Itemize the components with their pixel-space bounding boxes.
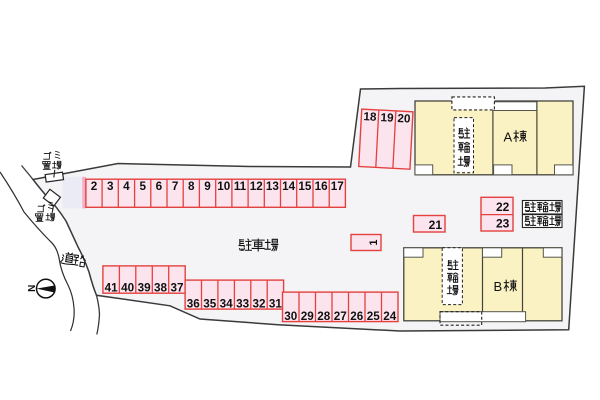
svg-text:20: 20 — [397, 112, 411, 126]
svg-text:36: 36 — [187, 297, 201, 310]
svg-text:29: 29 — [301, 310, 315, 323]
svg-text:25: 25 — [367, 310, 381, 323]
svg-text:40: 40 — [121, 281, 135, 294]
svg-text:8: 8 — [188, 180, 195, 193]
svg-text:23: 23 — [496, 217, 510, 231]
svg-text:27: 27 — [334, 310, 347, 323]
svg-text:B: B — [494, 279, 503, 294]
svg-text:4: 4 — [123, 180, 130, 193]
svg-text:39: 39 — [138, 281, 152, 294]
svg-text:A: A — [504, 130, 513, 145]
svg-text:10: 10 — [217, 180, 231, 193]
svg-text:24: 24 — [383, 310, 397, 323]
svg-text:33: 33 — [236, 297, 250, 310]
svg-text:5: 5 — [139, 180, 146, 193]
svg-text:19: 19 — [380, 111, 394, 125]
svg-text:32: 32 — [252, 297, 266, 310]
svg-text:9: 9 — [204, 180, 211, 193]
svg-text:2: 2 — [91, 180, 98, 193]
svg-text:26: 26 — [350, 310, 364, 323]
svg-text:22: 22 — [496, 200, 510, 214]
svg-text:16: 16 — [315, 180, 329, 193]
svg-text:7: 7 — [172, 180, 179, 193]
svg-text:41: 41 — [105, 281, 119, 294]
svg-text:38: 38 — [154, 281, 168, 294]
svg-text:30: 30 — [284, 310, 298, 323]
svg-text:14: 14 — [282, 180, 296, 193]
svg-text:28: 28 — [317, 310, 331, 323]
svg-text:35: 35 — [203, 297, 217, 310]
svg-text:12: 12 — [250, 180, 264, 193]
svg-text:1: 1 — [368, 239, 380, 245]
svg-text:37: 37 — [170, 281, 183, 294]
svg-text:3: 3 — [107, 180, 114, 193]
svg-text:31: 31 — [269, 297, 283, 310]
svg-text:34: 34 — [220, 297, 234, 310]
svg-text:15: 15 — [298, 180, 312, 193]
svg-text:21: 21 — [429, 218, 443, 232]
svg-text:N: N — [27, 285, 38, 292]
svg-text:18: 18 — [363, 110, 377, 124]
svg-text:17: 17 — [331, 180, 344, 193]
svg-text:6: 6 — [156, 180, 163, 193]
svg-text:13: 13 — [266, 180, 280, 193]
svg-text:11: 11 — [234, 180, 247, 193]
